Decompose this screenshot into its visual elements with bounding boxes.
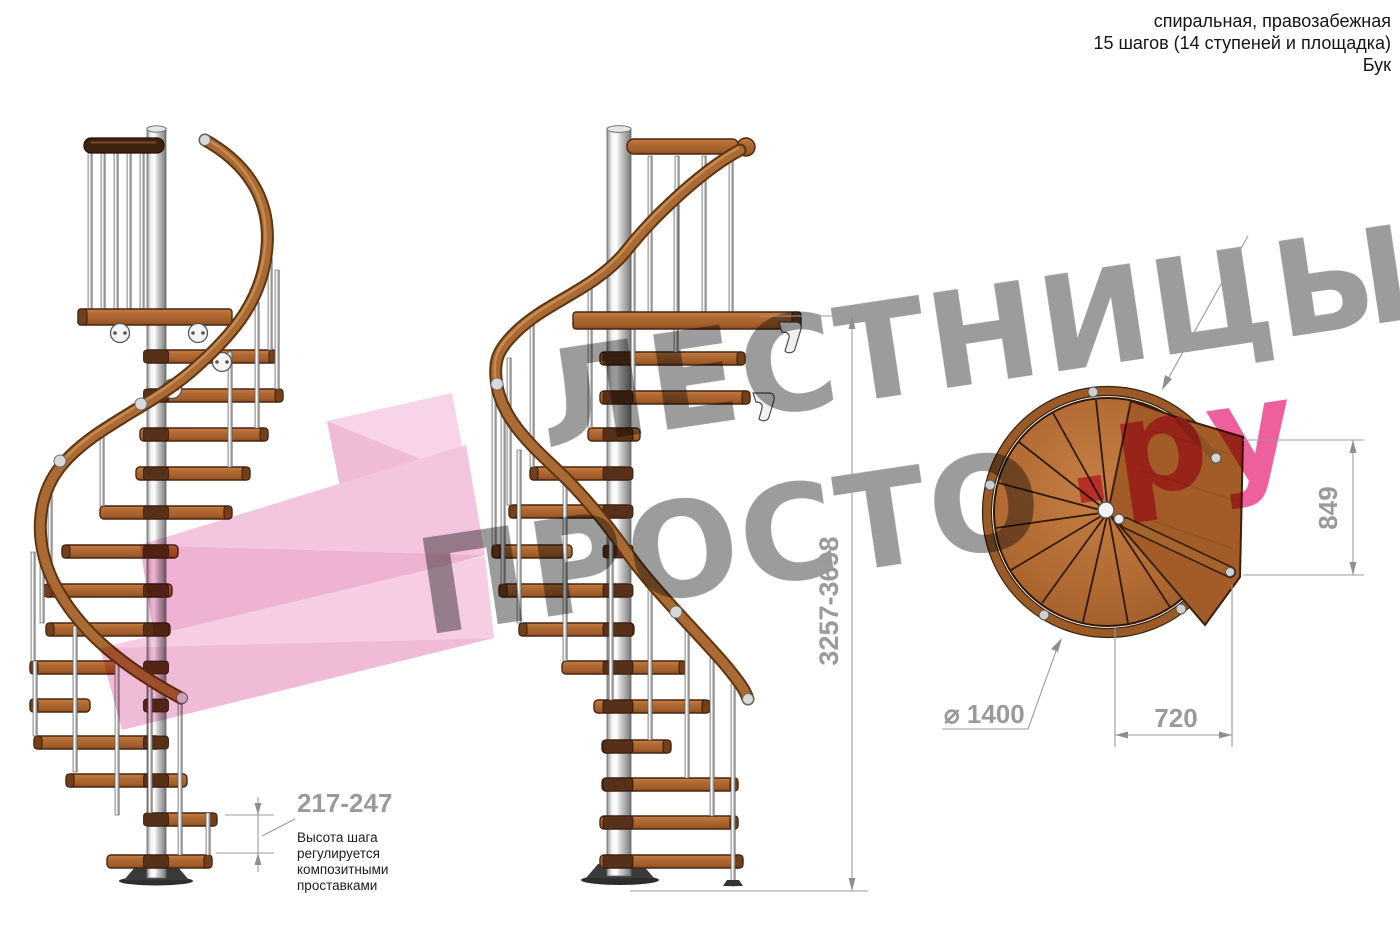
right-pole-cap xyxy=(607,126,631,133)
tread xyxy=(34,736,160,749)
spec-header: спиральная, правозабежная 15 шагов (14 с… xyxy=(1093,10,1391,76)
dim-arrow-diameter xyxy=(1051,638,1062,652)
spec-line-material: Бук xyxy=(1093,54,1391,76)
handrail-end-cap xyxy=(743,694,754,705)
brand-watermark: ЛЕСТНИЦЫ ПРОСТО .ру xyxy=(407,197,1400,667)
dim-arrow-left xyxy=(1115,732,1128,739)
left-pole-cap xyxy=(147,126,166,132)
note-leader-line xyxy=(262,819,295,836)
spec-line-steps: 15 шагов (14 ступеней и площадка) xyxy=(1093,32,1391,54)
landing-width-label: 720 xyxy=(1154,703,1197,733)
dim-arrow-down xyxy=(1350,562,1357,575)
total-height-label: 3257-3698 xyxy=(814,536,844,665)
handrail-start-cap xyxy=(200,135,211,146)
handrail-sleeve xyxy=(491,378,503,390)
left-staircase-side-view xyxy=(30,126,283,886)
front-baluster-foot xyxy=(723,880,743,886)
staircase-drawing: ЛЕСТНИЦЫ ПРОСТО .ру 3257-3698 217-247 Вы… xyxy=(0,0,1400,943)
dim-arrow-up xyxy=(1350,440,1357,453)
step-note-line3: композитными xyxy=(297,862,388,877)
handrail-sleeve xyxy=(54,455,66,467)
left-landing-cap xyxy=(78,309,87,325)
spec-line-type: спиральная, правозабежная xyxy=(1093,10,1391,32)
left-landing-platform xyxy=(78,309,232,325)
dim-arrow-down xyxy=(849,878,856,891)
landing-depth-label: 849 xyxy=(1313,486,1343,529)
right-landing-top-rail xyxy=(627,139,739,154)
tread xyxy=(30,699,90,712)
dim-arrow-down xyxy=(255,803,262,815)
dim-arrow-right xyxy=(1219,732,1232,739)
step-height-label: 217-247 xyxy=(297,788,392,818)
technical-drawing-canvas: ЛЕСТНИЦЫ ПРОСТО .ру 3257-3698 217-247 Вы… xyxy=(0,0,1400,943)
step-note-line1: Высота шага xyxy=(297,830,378,845)
left-landing-top-rail xyxy=(84,138,164,153)
dim-arrow-up xyxy=(255,853,262,865)
plan-lower-rail-cap xyxy=(1226,568,1235,577)
step-note-line2: регулируется xyxy=(297,846,380,861)
handrail-sleeve xyxy=(135,398,147,410)
step-note-line4: проставками xyxy=(297,878,377,893)
diameter-label: ⌀ 1400 xyxy=(944,699,1025,729)
